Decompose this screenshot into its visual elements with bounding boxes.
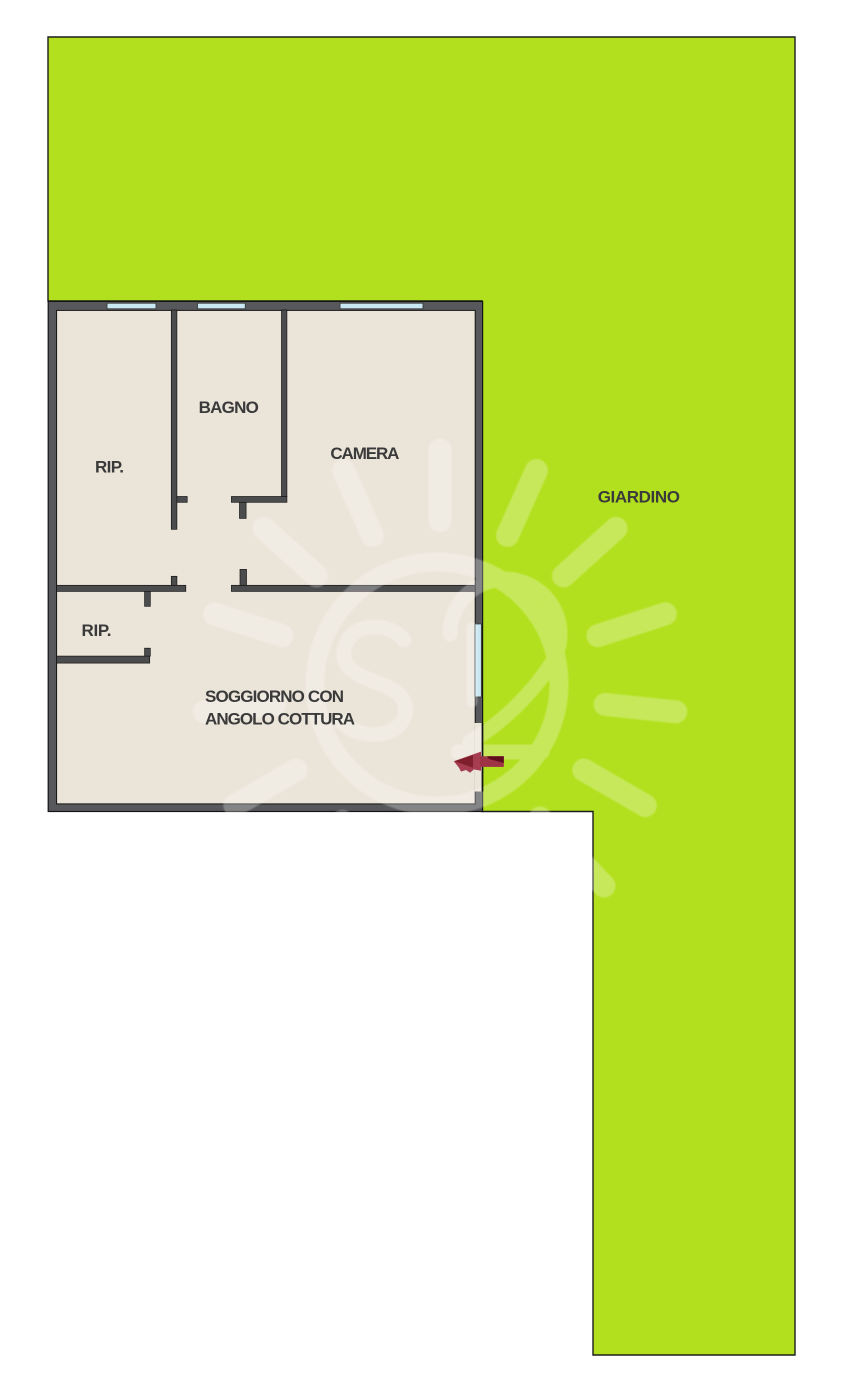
svg-text:ANGOLO COTTURA: ANGOLO COTTURA bbox=[205, 710, 355, 729]
svg-text:RIP.: RIP. bbox=[82, 621, 112, 640]
svg-text:CAMERA: CAMERA bbox=[330, 444, 399, 463]
svg-text:SOGGIORNO CON: SOGGIORNO CON bbox=[205, 687, 344, 706]
svg-text:BAGNO: BAGNO bbox=[199, 398, 259, 417]
svg-text:RIP.: RIP. bbox=[95, 458, 124, 477]
svg-text:GIARDINO: GIARDINO bbox=[598, 488, 680, 507]
